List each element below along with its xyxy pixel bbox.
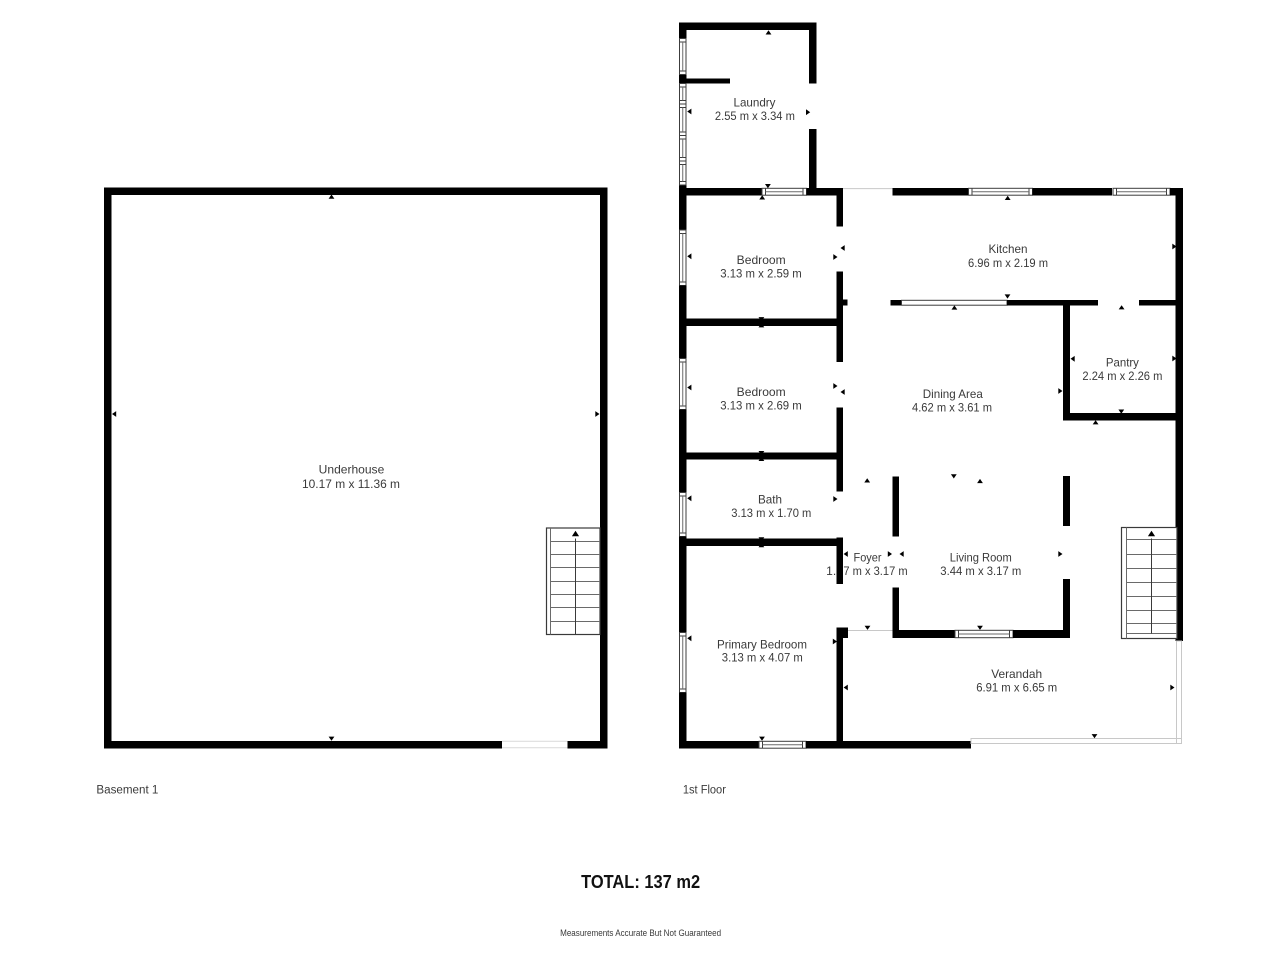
svg-text:Dining Area: Dining Area	[923, 387, 983, 401]
svg-text:Bedroom: Bedroom	[737, 385, 786, 399]
svg-text:Verandah: Verandah	[991, 667, 1042, 681]
svg-text:3.13 m x 1.70 m: 3.13 m x 1.70 m	[731, 506, 811, 520]
svg-text:3.13 m x 2.69 m: 3.13 m x 2.69 m	[720, 399, 802, 413]
svg-text:3.13 m x 2.59 m: 3.13 m x 2.59 m	[720, 267, 802, 281]
svg-text:Bath: Bath	[758, 492, 782, 506]
svg-text:Bedroom: Bedroom	[737, 253, 786, 267]
svg-text:Kitchen: Kitchen	[989, 242, 1028, 256]
svg-text:Pantry: Pantry	[1106, 355, 1139, 369]
svg-text:Foyer: Foyer	[854, 551, 882, 565]
svg-text:3.44 m x 3.17 m: 3.44 m x 3.17 m	[940, 564, 1021, 578]
svg-text:Underhouse: Underhouse	[319, 462, 385, 476]
svg-text:Living Room: Living Room	[950, 551, 1012, 565]
svg-text:1st Floor: 1st Floor	[683, 785, 726, 797]
svg-text:10.17 m x 11.36 m: 10.17 m x 11.36 m	[302, 477, 400, 491]
svg-text:Measurements Accurate But Not: Measurements Accurate But Not Guaranteed	[560, 928, 721, 938]
svg-text:4.62 m x 3.61 m: 4.62 m x 3.61 m	[912, 401, 992, 415]
svg-text:6.91 m x 6.65 m: 6.91 m x 6.65 m	[976, 681, 1057, 695]
svg-text:Basement 1: Basement 1	[96, 785, 158, 797]
svg-text:3.13 m x 4.07 m: 3.13 m x 4.07 m	[722, 650, 803, 664]
svg-text:7 m x 3.17 m: 7 m x 3.17 m	[843, 564, 907, 578]
svg-text:TOTAL: 137 m2: TOTAL: 137 m2	[581, 871, 700, 892]
svg-text:6.96 m x 2.19 m: 6.96 m x 2.19 m	[968, 256, 1048, 270]
svg-text:1.: 1.	[826, 564, 836, 578]
svg-text:Laundry: Laundry	[734, 96, 776, 110]
svg-text:2.55 m x 3.34 m: 2.55 m x 3.34 m	[715, 109, 795, 123]
svg-text:2.24 m x 2.26 m: 2.24 m x 2.26 m	[1082, 369, 1162, 383]
